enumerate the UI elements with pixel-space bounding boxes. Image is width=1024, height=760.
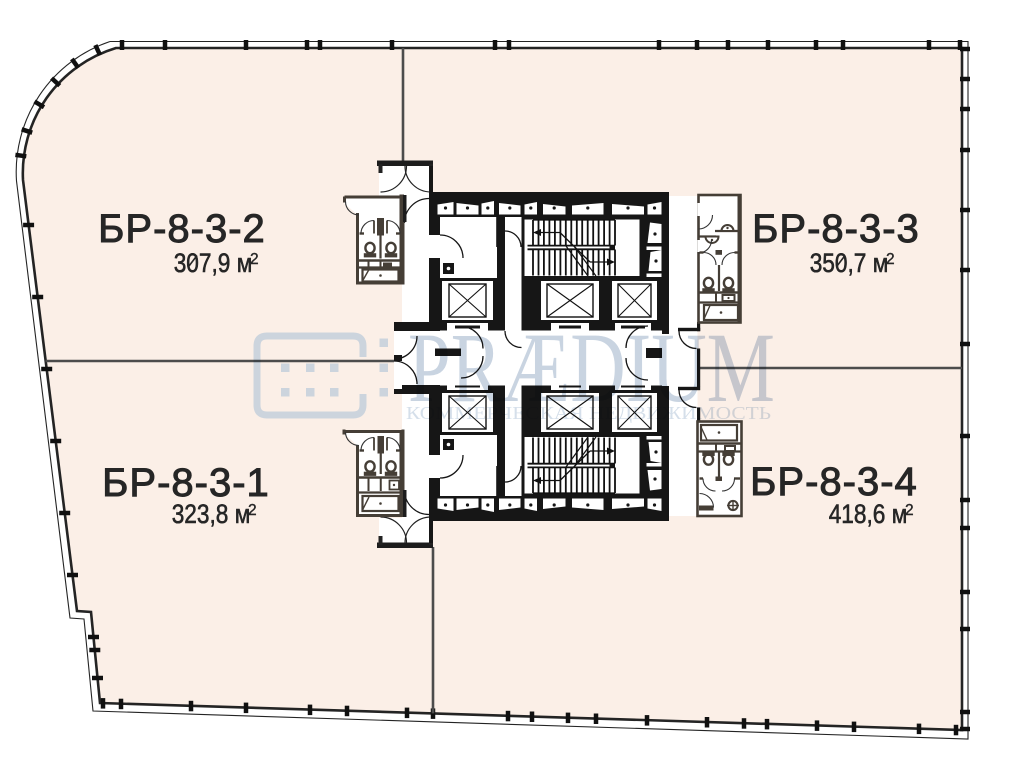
svg-text:2: 2 bbox=[905, 502, 914, 519]
svg-text:2: 2 bbox=[886, 251, 895, 268]
svg-text:418,6 м: 418,6 м bbox=[829, 499, 908, 529]
svg-text:350,7 м: 350,7 м bbox=[810, 248, 889, 278]
svg-text:2: 2 bbox=[250, 251, 259, 268]
svg-text:2: 2 bbox=[248, 502, 257, 519]
svg-text:323,8 м: 323,8 м bbox=[172, 499, 251, 529]
svg-text:307,9 м: 307,9 м bbox=[174, 248, 253, 278]
svg-text:КОММЕРЧЕСКАЯ НЕДВИЖИМОСТЬ: КОММЕРЧЕСКАЯ НЕДВИЖИМОСТЬ bbox=[406, 403, 771, 423]
svg-text:БР-8-3-3: БР-8-3-3 bbox=[752, 207, 920, 251]
svg-text:БР-8-3-2: БР-8-3-2 bbox=[98, 207, 266, 251]
svg-text:БР-8-3-4: БР-8-3-4 bbox=[750, 460, 918, 504]
